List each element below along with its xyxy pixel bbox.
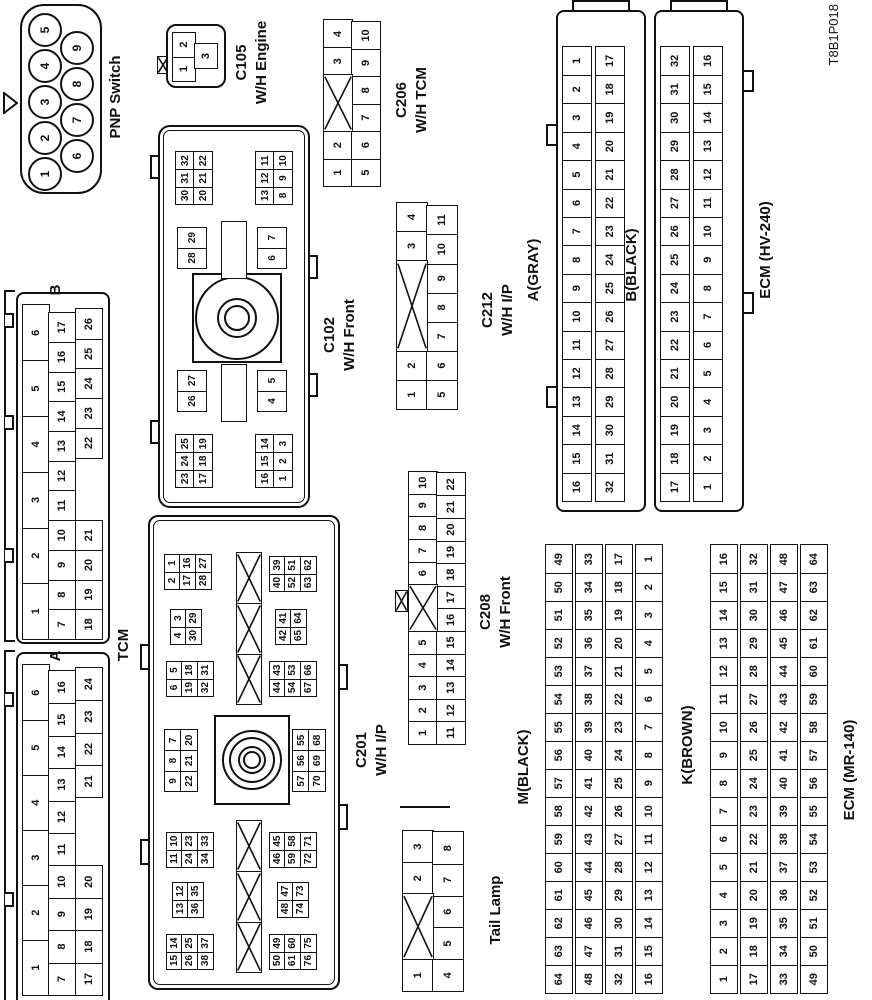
tcm-housing-edge-b-end <box>4 290 15 292</box>
pin-cell: 11 <box>710 684 738 714</box>
m-black-label: M(BLACK) <box>514 692 534 842</box>
pin-cell: 2 <box>693 444 723 474</box>
pin-cell: 8 <box>426 292 458 323</box>
pin-cell: 1 <box>273 469 293 488</box>
pin-cell: 4 <box>257 390 287 412</box>
pin-cell: 8 <box>562 245 592 275</box>
pin-cell: 11 <box>426 205 458 236</box>
pin-cell: 4 <box>710 880 738 910</box>
pin-cell: 18 <box>75 609 103 640</box>
c201-x-row-right <box>236 554 260 705</box>
pin-cell: 68 <box>308 729 326 751</box>
pin-cell: 15 <box>710 572 738 602</box>
ecm-a-grid: 1615141312111098765432132313029282726252… <box>562 48 628 503</box>
pin-cell: 17 <box>595 46 625 76</box>
c201-block: 2117162827 <box>164 555 210 590</box>
pin-cell: 9 <box>693 245 723 275</box>
pin-cell: 5 <box>635 656 663 686</box>
pin-row: 12345678910111213141516 <box>710 546 738 994</box>
pin-cell: 13 <box>693 131 723 161</box>
pin-cell: 31 <box>197 661 214 680</box>
wiring-diagram-canvas: 123456789101112131415161718192021222324 … <box>0 0 872 1000</box>
pin-cell: 49 <box>800 964 828 994</box>
pin-cell: 52 <box>545 628 573 658</box>
pin-cell: 18 <box>740 936 768 966</box>
pin-row: 49505152535455565758596061626364 <box>800 546 828 994</box>
pin-cell: 32 <box>595 472 625 502</box>
pin-cell: 7 <box>693 302 723 332</box>
c208-grid: 12345678910111213141516171819202122 <box>408 472 465 745</box>
c102-block: 45 <box>257 371 285 412</box>
pin-cell: 3 <box>635 600 663 630</box>
pin-cell: 13 <box>255 186 275 205</box>
pin-cell: 69 <box>308 750 326 772</box>
pin-row: 67 <box>257 228 287 269</box>
pin-cell: 3 <box>693 415 723 445</box>
pin-cell: 14 <box>710 600 738 630</box>
pin-cell: 54 <box>800 824 828 854</box>
pin-cell: 2 <box>323 131 353 160</box>
pin-cell: 27 <box>595 330 625 360</box>
pin-cell: 19 <box>436 540 466 564</box>
pin-cell: 1 <box>635 544 663 574</box>
pin-cell: 36 <box>187 899 204 918</box>
pin-cell: 53 <box>545 656 573 686</box>
pin-row: 5678910 <box>351 21 381 187</box>
pin-cell: 46 <box>770 600 798 630</box>
x-cell <box>236 871 262 923</box>
tcm-housing-edge-b <box>4 290 6 642</box>
c201-block: 48477473 <box>277 883 308 918</box>
pin-cell: 17 <box>740 964 768 994</box>
pin-cell: 3 <box>408 676 438 700</box>
pin-cell: 53 <box>800 852 828 882</box>
pin-cell: 1 <box>693 472 723 502</box>
pin-cell: 35 <box>187 882 204 901</box>
pin-cell: 39 <box>575 712 603 742</box>
pin-cell: 34 <box>197 849 214 868</box>
pin-cell: 50 <box>545 572 573 602</box>
pin-row: 161514 <box>255 436 275 488</box>
pin-cell: 52 <box>800 880 828 910</box>
pin-cell: 7 <box>426 321 458 352</box>
tail-lamp-label: Tail Lamp <box>486 840 506 980</box>
pin-cell: 33 <box>770 964 798 994</box>
pin-cell: 15 <box>436 630 466 654</box>
pin-cell: 57 <box>292 770 310 792</box>
pin-cell: 24 <box>660 273 690 303</box>
gap <box>75 798 103 866</box>
pin-row: 45 <box>257 371 287 412</box>
c102-block: 2829 <box>177 228 205 269</box>
pin-cell: 10 <box>351 21 381 50</box>
pin-cell: 10 <box>710 712 738 742</box>
pin-row <box>236 822 262 973</box>
pin-cell: 24 <box>75 368 103 399</box>
pin-cell: 63 <box>300 573 317 592</box>
pin-cell: 45 <box>575 880 603 910</box>
pin-row: 16151413121110987654321 <box>562 48 592 503</box>
pin-cell: 64 <box>800 544 828 574</box>
pin-cell: 44 <box>575 852 603 882</box>
pin-cell: 26 <box>595 302 625 332</box>
x-cell <box>236 921 262 973</box>
c201-block: 403952516362 <box>269 557 315 592</box>
pin-cell: 76 <box>300 951 317 970</box>
pin-cell: 12 <box>48 460 76 491</box>
pin-cell: 27 <box>605 824 633 854</box>
pin-cell: 12 <box>710 656 738 686</box>
pin-cell: 14 <box>562 415 592 445</box>
pin-cell: 6 <box>426 350 458 381</box>
pin-cell: 11 <box>693 188 723 218</box>
tcm-label: TCM <box>114 610 134 680</box>
pin-cell: 37 <box>770 852 798 882</box>
pin-cell: 8 <box>351 76 381 105</box>
pin-cell: 44 <box>770 656 798 686</box>
pin-cell: 29 <box>740 628 768 658</box>
pin-row: 575655 <box>292 731 310 792</box>
pin-cell: 61 <box>545 880 573 910</box>
pin-cell: 2 <box>635 572 663 602</box>
pin-cell: 13 <box>710 628 738 658</box>
pin-row: 48474645444342414039383736353433 <box>575 546 603 994</box>
pin-cell: 22 <box>75 427 103 458</box>
c201-block: 6519183231 <box>166 662 212 697</box>
pnp-pin: 2 <box>28 121 62 155</box>
tail-lamp-face-line <box>400 806 450 808</box>
pin-cell: 19 <box>75 897 103 931</box>
pnp-pin: 3 <box>28 85 62 119</box>
pin-cell: 37 <box>575 656 603 686</box>
pin-cell: 15 <box>693 74 723 104</box>
pin-cell: 4 <box>562 131 592 161</box>
pin-cell: 40 <box>575 740 603 770</box>
pin-cell: 6 <box>432 895 464 928</box>
pin-cell: 58 <box>545 796 573 826</box>
tcm-housing-notch <box>5 548 14 563</box>
c201-grommet-ring <box>243 751 261 769</box>
ecm-m-grid: 6463626160595857565554535251504948474645… <box>545 546 665 994</box>
c212-grid: 1234567891011 <box>396 203 457 410</box>
pin-cell: 17 <box>193 469 213 488</box>
pin-cell: 3 <box>323 47 353 76</box>
tcm-housing-edge-b-end <box>4 640 15 642</box>
pin-cell: 26 <box>740 712 768 742</box>
pin-cell: 17 <box>660 472 690 502</box>
pin-cell: 20 <box>436 517 466 541</box>
pin-cell: 28 <box>660 160 690 190</box>
pin-cell: 17 <box>605 544 633 574</box>
pin-cell: 5 <box>693 358 723 388</box>
pin-cell: 10 <box>48 520 76 551</box>
pin-cell: 16 <box>436 608 466 632</box>
pin-cell: 12 <box>693 160 723 190</box>
pin-cell: 19 <box>595 103 625 133</box>
pnp-label: PNP Switch <box>106 2 126 192</box>
pin-cell: 25 <box>175 434 195 453</box>
pin-cell: 70 <box>308 770 326 792</box>
x-cell <box>236 603 262 655</box>
pin-row: 131211 <box>255 153 275 205</box>
pin-cell: 34 <box>575 572 603 602</box>
c102-block: 67 <box>257 228 285 269</box>
pin-cell: 15 <box>562 444 592 474</box>
pin-cell: 6 <box>22 664 50 721</box>
pin-cell: 4 <box>408 653 438 677</box>
x-cell <box>236 552 262 604</box>
pin-row: 78910111213141516 <box>48 666 76 996</box>
pin-row: 1718192021222324 <box>75 666 103 996</box>
pin-cell: 12 <box>635 852 663 882</box>
pin-cell: 62 <box>800 600 828 630</box>
pin-cell: 21 <box>193 169 213 188</box>
pin-cell: 43 <box>770 684 798 714</box>
pin-cell: 74 <box>292 899 309 918</box>
pin-row: 7891011121314151617 <box>48 306 76 640</box>
pin-cell: 14 <box>635 908 663 938</box>
pin-row: 7675 <box>300 935 317 970</box>
pin-cell: 10 <box>635 796 663 826</box>
pin-cell: 3 <box>273 434 293 453</box>
pin-cell: 29 <box>177 227 207 249</box>
pin-cell: 14 <box>255 434 275 453</box>
pin-cell: 5 <box>426 379 458 410</box>
pin-row: 33343536373839404142434445464748 <box>770 546 798 994</box>
pin-cell: 1 <box>562 46 592 76</box>
pin-cell: 1 <box>396 379 428 410</box>
pin-cell: 20 <box>605 628 633 658</box>
pin-cell: 25 <box>740 740 768 770</box>
pin-cell: 50 <box>800 936 828 966</box>
pin-cell: 23 <box>740 796 768 826</box>
pin-row: 12345678910111213141516 <box>693 48 723 503</box>
pin-cell: 16 <box>48 670 76 704</box>
pin-cell: 12 <box>436 698 466 722</box>
pin-cell: 6 <box>351 131 381 160</box>
pin-cell: 9 <box>48 549 76 580</box>
pin-row: 17181920212223242526272829303132 <box>740 546 768 994</box>
pin-cell: 24 <box>740 768 768 798</box>
pin-row: 123 <box>402 831 434 992</box>
pin-cell: 22 <box>740 824 768 854</box>
pin-cell: 16 <box>693 46 723 76</box>
pin-cell: 5 <box>22 360 50 417</box>
c102-block: 2627 <box>177 371 205 412</box>
c102-label: C102 W/H Front <box>320 265 359 405</box>
pin-cell: 42 <box>770 712 798 742</box>
pin-cell: 10 <box>562 302 592 332</box>
pin-cell: 64 <box>290 609 307 628</box>
pin-cell: 1 <box>408 721 438 745</box>
pin-row: 8910 <box>273 153 293 205</box>
pin-cell: 20 <box>660 387 690 417</box>
c206-grid: 12345678910 <box>323 21 380 187</box>
tcm-housing-notch <box>5 415 14 430</box>
pin-cell: 38 <box>197 951 214 970</box>
pin-cell: 66 <box>300 661 317 680</box>
pin-cell: 3 <box>22 471 50 528</box>
ecm-b-grid: 1718192021222324252627282930313212345678… <box>660 48 726 503</box>
pin-cell: 23 <box>605 712 633 742</box>
pin-cell: 26 <box>177 390 207 412</box>
pin-cell: 45 <box>770 628 798 658</box>
k-brown-label: K(BROWN) <box>678 670 698 820</box>
pin-cell: 11 <box>562 330 592 360</box>
pin-row: 2627 <box>177 371 207 412</box>
pin-cell: 7 <box>408 538 438 562</box>
pin-row: 111213141516171819202122 <box>436 472 466 745</box>
pin-cell: 14 <box>693 103 723 133</box>
pin-cell: 73 <box>292 882 309 901</box>
pin-cell: 36 <box>575 628 603 658</box>
pin-row: 123456 <box>22 306 50 640</box>
pin-cell: 29 <box>595 387 625 417</box>
pin-cell: 2 <box>408 698 438 722</box>
pin-cell: 20 <box>75 865 103 899</box>
pin-cell: 38 <box>575 684 603 714</box>
pin-cell: 26 <box>75 308 103 339</box>
pin-cell: 59 <box>545 824 573 854</box>
c201-x-row-left <box>236 822 260 973</box>
pin-cell: 5 <box>562 160 592 190</box>
pin-cell: 18 <box>436 563 466 587</box>
c102-blank-slot <box>221 221 247 279</box>
pin-cell: 4 <box>635 628 663 658</box>
pin-cell: 8 <box>710 768 738 798</box>
pin-cell: 63 <box>800 572 828 602</box>
pin-cell: 48 <box>575 964 603 994</box>
pin-cell: 47 <box>770 572 798 602</box>
pin-cell: 19 <box>605 600 633 630</box>
pin-cell: 9 <box>635 768 663 798</box>
pin-cell: 33 <box>575 544 603 574</box>
pin-cell: 15 <box>635 936 663 966</box>
pin-cell: 18 <box>75 930 103 964</box>
pin-cell: 11 <box>436 721 466 745</box>
pin-row: 3231 <box>197 662 214 697</box>
pin-cell: 75 <box>300 934 317 953</box>
pin-cell: 9 <box>408 493 438 517</box>
pin-cell: 48 <box>770 544 798 574</box>
pnp-pin: 6 <box>60 139 94 173</box>
pin-cell: 18 <box>660 444 690 474</box>
c201-block: 151426253837 <box>166 935 212 970</box>
pin-cell: 7 <box>48 609 76 640</box>
pin-cell: 40 <box>770 768 798 798</box>
pin-cell: 55 <box>800 796 828 826</box>
pin-cell: 29 <box>185 609 202 628</box>
pin-cell: 1 <box>172 56 196 82</box>
pin-cell: 7 <box>257 227 287 249</box>
pin-row: 17181920212223242526272829303132 <box>660 48 690 503</box>
pin-cell: 56 <box>800 768 828 798</box>
pin-cell: 11 <box>635 824 663 854</box>
c102-block: 232425171819 <box>175 436 212 488</box>
pin-cell: 6 <box>710 824 738 854</box>
pin-row: 3837 <box>197 935 214 970</box>
pin-row: 232425 <box>175 436 195 488</box>
pin-cell: 2 <box>273 452 293 471</box>
tcm-connector-b-letter: B <box>46 280 66 300</box>
pin-cell: 32 <box>740 544 768 574</box>
pin-cell: 49 <box>545 544 573 574</box>
pin-cell: 7 <box>351 103 381 132</box>
pin-cell: 63 <box>545 936 573 966</box>
pin-cell: 38 <box>770 824 798 854</box>
pin-cell: 24 <box>605 740 633 770</box>
c102-block: 161514123 <box>255 436 292 488</box>
pin-cell: 16 <box>635 964 663 994</box>
pnp-pin: 1 <box>28 157 62 191</box>
pin-cell: 7 <box>635 712 663 742</box>
pin-cell: 34 <box>770 936 798 966</box>
pin-cell: 21 <box>436 495 466 519</box>
pin-cell: 5 <box>257 370 287 392</box>
pin-row: 1234 <box>323 21 353 187</box>
pin-cell: 37 <box>197 934 214 953</box>
pin-cell: 2 <box>22 527 50 584</box>
pin-cell: 3 <box>396 231 428 262</box>
tcm-housing-notch <box>5 313 14 328</box>
c201-block: 504961607675 <box>269 935 315 970</box>
pin-cell: 5 <box>710 852 738 882</box>
tcm-housing-notch <box>5 692 14 707</box>
pin-row: 171819 <box>193 436 213 488</box>
pin-row: 6362 <box>300 557 317 592</box>
diagram-viewport: 123456789101112131415161718192021222324 … <box>0 0 872 1000</box>
pin-cell: 32 <box>660 46 690 76</box>
pin-cell: 5 <box>351 158 381 187</box>
c102-blank-slot <box>221 364 247 422</box>
x-cell <box>236 820 262 872</box>
pin-cell: 1 <box>710 964 738 994</box>
pin-cell: 21 <box>740 852 768 882</box>
pin-cell: 67 <box>300 678 317 697</box>
pin-cell: 9 <box>710 740 738 770</box>
pin-cell: 25 <box>660 245 690 275</box>
pin-cell: 3 <box>22 829 50 886</box>
pin-row: 567891011 <box>426 203 458 410</box>
pnp-pin: 4 <box>28 49 62 83</box>
tcm-connector-a-letter: A <box>46 646 66 666</box>
pin-cell: 2 <box>562 74 592 104</box>
pin-cell: 20 <box>193 186 213 205</box>
pin-cell: 30 <box>175 186 195 205</box>
pin-cell: 4 <box>22 416 50 473</box>
pin-row: 123 <box>273 436 293 488</box>
pnp-pin: 5 <box>28 13 62 47</box>
pin-cell: 16 <box>255 469 275 488</box>
ecm-hv-label: ECM (HV-240) <box>756 160 776 340</box>
gap <box>194 69 218 82</box>
pin-cell: 31 <box>605 936 633 966</box>
pin-cell: 7 <box>48 962 76 996</box>
pin-cell: 13 <box>562 387 592 417</box>
pin-cell: 8 <box>635 740 663 770</box>
pin-cell: 10 <box>273 151 293 170</box>
pin-cell: 51 <box>545 600 573 630</box>
pin-cell: 32 <box>175 151 195 170</box>
c201-block: 464559587271 <box>269 833 315 868</box>
pin-row: 3 <box>194 33 218 82</box>
pin-cell: 55 <box>292 729 310 751</box>
pin-cell: 28 <box>195 571 212 590</box>
pin-cell: 27 <box>660 188 690 218</box>
pin-cell: 5 <box>22 719 50 776</box>
pin-cell: 18 <box>605 572 633 602</box>
pin-row: 303132 <box>175 153 195 205</box>
